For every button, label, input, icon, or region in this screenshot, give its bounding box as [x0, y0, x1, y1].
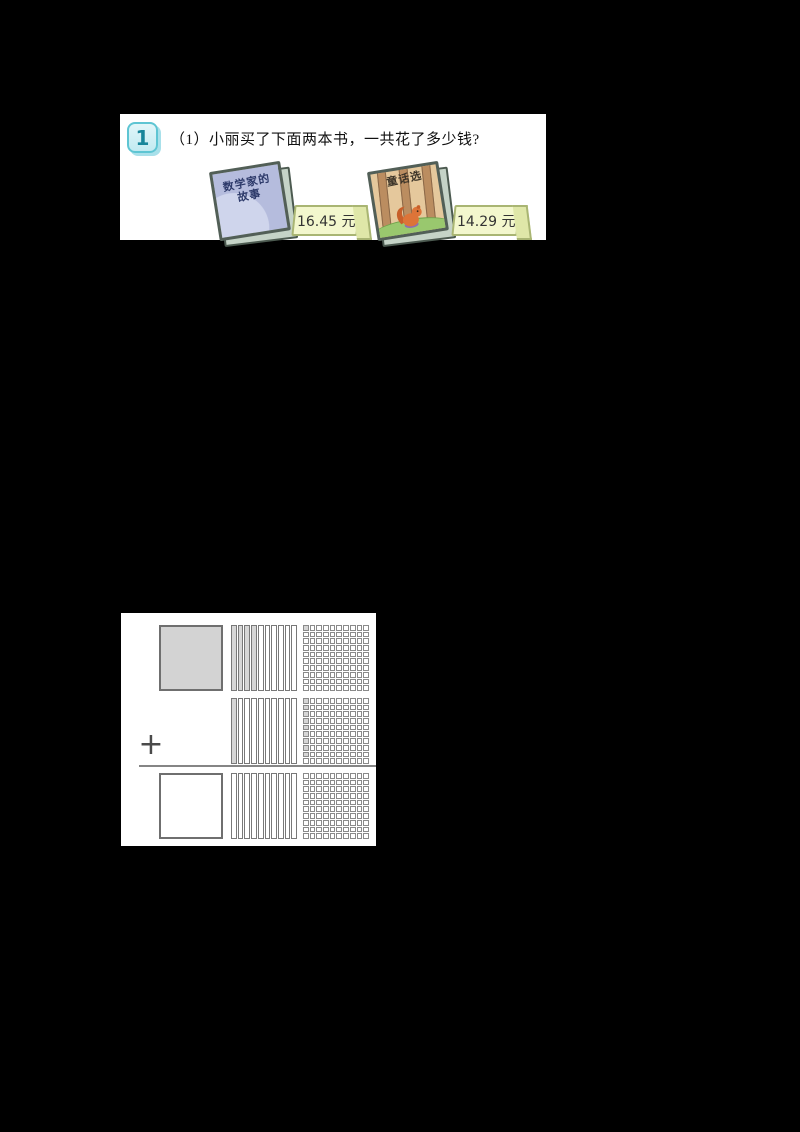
hundredth-cell	[330, 705, 336, 711]
hundredth-cell	[323, 625, 329, 631]
hundredth-cell	[343, 665, 349, 671]
hundredth-cell	[310, 800, 316, 806]
hundredth-cell	[323, 658, 329, 664]
hundredth-cell	[303, 786, 309, 792]
hundredth-cell	[343, 827, 349, 833]
hundredth-cell	[330, 698, 336, 704]
hundredth-cell	[336, 711, 342, 717]
hundredth-cell	[316, 806, 322, 812]
hundredth-cell	[303, 745, 309, 751]
price-label: 14.29 元	[457, 211, 516, 231]
model-panel: +	[121, 613, 376, 846]
hundredth-cell	[336, 800, 342, 806]
tenth-strip	[271, 698, 277, 764]
hundredth-cell	[343, 833, 349, 839]
tenth-strip	[251, 698, 257, 764]
hundredth-cell	[316, 665, 322, 671]
book-fairy-tales: 童话选	[371, 165, 450, 242]
hundredth-cell	[350, 780, 356, 786]
hundredth-cell	[363, 752, 369, 758]
hundredth-cell	[316, 773, 322, 779]
hundredth-cell	[310, 679, 316, 685]
hundredth-cell	[330, 652, 336, 658]
tenth-strip	[244, 625, 250, 691]
hundredth-cell	[323, 638, 329, 644]
hundredth-cell	[350, 679, 356, 685]
hundredth-cell	[323, 752, 329, 758]
hundredth-cell	[350, 752, 356, 758]
hundredth-cell	[343, 820, 349, 826]
hundredth-cell	[336, 625, 342, 631]
hundredth-cell	[310, 711, 316, 717]
hundredth-cell	[357, 745, 363, 751]
hundredths-grid	[303, 625, 369, 691]
hundredth-cell	[350, 758, 356, 764]
hundredth-cell	[310, 645, 316, 651]
hundredth-cell	[350, 645, 356, 651]
hundredth-cell	[357, 758, 363, 764]
hundredth-cell	[350, 813, 356, 819]
hundredth-cell	[357, 813, 363, 819]
hundredth-cell	[310, 652, 316, 658]
hundredth-cell	[316, 738, 322, 744]
hundredth-cell	[330, 745, 336, 751]
hundredth-cell	[357, 652, 363, 658]
hundredth-cell	[363, 679, 369, 685]
book-title: 数学家的 故事	[213, 171, 283, 210]
hundredth-cell	[330, 632, 336, 638]
hundredth-cell	[350, 625, 356, 631]
tenth-strip	[291, 773, 297, 839]
hundredth-cell	[336, 679, 342, 685]
hundredth-cell	[350, 786, 356, 792]
price-tag-2: 14.29 元	[451, 205, 520, 236]
hundredth-cell	[336, 731, 342, 737]
hundredth-cell	[330, 718, 336, 724]
hundredth-cell	[350, 833, 356, 839]
hundredth-cell	[336, 738, 342, 744]
hundredth-cell	[303, 718, 309, 724]
hundredth-cell	[343, 780, 349, 786]
sum-line	[139, 765, 376, 767]
hundredth-cell	[316, 833, 322, 839]
hundredth-cell	[336, 813, 342, 819]
hundredth-cell	[336, 786, 342, 792]
hundredth-cell	[343, 786, 349, 792]
hundredth-cell	[350, 638, 356, 644]
hundredth-cell	[316, 652, 322, 658]
hundredth-cell	[303, 758, 309, 764]
hundredth-cell	[343, 679, 349, 685]
hundredth-cell	[357, 786, 363, 792]
hundredth-cell	[357, 679, 363, 685]
hundredth-cell	[363, 820, 369, 826]
hundredth-cell	[350, 725, 356, 731]
hundredth-cell	[303, 685, 309, 691]
hundredth-cell	[310, 758, 316, 764]
tenth-strip	[265, 773, 271, 839]
book-math-stories: 数学家的 故事	[213, 165, 292, 242]
tenth-strip	[278, 698, 284, 764]
hundredth-cell	[336, 827, 342, 833]
hundredth-cell	[357, 752, 363, 758]
hundredth-cell	[330, 758, 336, 764]
tenth-strip	[258, 773, 264, 839]
hundredth-cell	[310, 632, 316, 638]
hundredth-cell	[357, 665, 363, 671]
hundredth-cell	[343, 806, 349, 812]
hundredth-cell	[363, 833, 369, 839]
hundredth-cell	[357, 731, 363, 737]
hundredth-cell	[330, 786, 336, 792]
hundredth-cell	[357, 773, 363, 779]
hundredth-cell	[343, 705, 349, 711]
hundredth-cell	[357, 698, 363, 704]
price-label: 16.45 元	[297, 211, 356, 231]
hundredth-cell	[330, 752, 336, 758]
hundredth-cell	[303, 820, 309, 826]
problem-panel: 1 （1）小丽买了下面两本书，一共花了多少钱? 数学家的 故事 16.45 元	[120, 114, 546, 240]
hundredth-cell	[330, 820, 336, 826]
hundredth-cell	[336, 718, 342, 724]
hundredth-cell	[303, 645, 309, 651]
book-math-stories-cover: 数学家的 故事	[209, 161, 291, 241]
tenth-strip	[291, 625, 297, 691]
hundredth-cell	[343, 793, 349, 799]
hundredth-cell	[363, 731, 369, 737]
hundredth-cell	[323, 745, 329, 751]
hundredth-cell	[310, 718, 316, 724]
hundredth-cell	[303, 738, 309, 744]
hundredth-cell	[323, 820, 329, 826]
tenth-strip	[244, 773, 250, 839]
hundredth-cell	[310, 752, 316, 758]
hundredth-cell	[343, 711, 349, 717]
hundredth-cell	[310, 786, 316, 792]
hundredth-cell	[357, 705, 363, 711]
hundredth-cell	[363, 786, 369, 792]
hundredth-cell	[343, 625, 349, 631]
hundredth-cell	[336, 752, 342, 758]
addend-row-1	[121, 625, 376, 691]
sum-row	[121, 773, 376, 839]
hundredth-cell	[343, 773, 349, 779]
hundredth-cell	[330, 731, 336, 737]
hundredth-cell	[357, 833, 363, 839]
hundredth-cell	[363, 698, 369, 704]
hundredth-cell	[357, 793, 363, 799]
tenth-strip	[278, 625, 284, 691]
hundredth-cell	[350, 705, 356, 711]
hundredth-cell	[323, 679, 329, 685]
hundredths-grid	[303, 698, 369, 764]
hundredth-cell	[350, 711, 356, 717]
hundredth-cell	[350, 793, 356, 799]
problem-question: （1）小丽买了下面两本书，一共花了多少钱?	[170, 131, 535, 149]
hundredth-cell	[363, 665, 369, 671]
hundredth-cell	[330, 827, 336, 833]
hundredth-cell	[350, 685, 356, 691]
tenth-strip	[231, 698, 237, 764]
hundredth-cell	[336, 773, 342, 779]
hundredth-cell	[363, 718, 369, 724]
tenth-strip	[238, 698, 244, 764]
hundredth-cell	[303, 827, 309, 833]
hundredth-cell	[316, 725, 322, 731]
worksheet-canvas: { "colors": { "canvas_bg": "#000000", "p…	[0, 0, 800, 1132]
hundredth-cell	[336, 632, 342, 638]
hundredth-cell	[330, 725, 336, 731]
hundredth-cell	[323, 672, 329, 678]
hundredth-cell	[316, 685, 322, 691]
hundredth-cell	[303, 773, 309, 779]
hundredth-cell	[310, 806, 316, 812]
tenth-strip	[258, 625, 264, 691]
hundredth-cell	[343, 752, 349, 758]
hundredth-cell	[343, 645, 349, 651]
hundredth-cell	[330, 780, 336, 786]
hundredth-cell	[316, 793, 322, 799]
hundredth-cell	[357, 638, 363, 644]
hundredth-cell	[350, 827, 356, 833]
hundredth-cell	[343, 745, 349, 751]
hundredth-cell	[330, 679, 336, 685]
hundredth-cell	[336, 833, 342, 839]
hundredth-cell	[363, 685, 369, 691]
hundredth-cell	[303, 625, 309, 631]
hundredth-cell	[363, 758, 369, 764]
tenth-strip	[265, 625, 271, 691]
hundredth-cell	[323, 665, 329, 671]
hundredth-cell	[350, 820, 356, 826]
hundredth-cell	[310, 731, 316, 737]
hundredth-cell	[310, 793, 316, 799]
price-tag-1: 16.45 元	[291, 205, 360, 236]
hundredth-cell	[336, 780, 342, 786]
hundredth-cell	[303, 793, 309, 799]
hundredth-cell	[316, 718, 322, 724]
hundredth-cell	[343, 698, 349, 704]
hundredth-cell	[316, 638, 322, 644]
hundredth-cell	[363, 745, 369, 751]
hundredth-cell	[336, 645, 342, 651]
hundredth-cell	[323, 725, 329, 731]
tenth-strip	[291, 698, 297, 764]
hundredth-cell	[310, 665, 316, 671]
hundredth-cell	[310, 672, 316, 678]
hundredth-cell	[323, 645, 329, 651]
hundredth-cell	[363, 632, 369, 638]
hundredth-cell	[316, 632, 322, 638]
hundredth-cell	[343, 758, 349, 764]
hundredth-cell	[357, 672, 363, 678]
tenth-strip	[265, 698, 271, 764]
tenth-strip	[258, 698, 264, 764]
tenth-strip	[285, 625, 291, 691]
hundredth-cell	[357, 658, 363, 664]
hundredth-cell	[363, 800, 369, 806]
tenth-strip	[278, 773, 284, 839]
hundredth-cell	[316, 731, 322, 737]
hundredth-cell	[316, 786, 322, 792]
hundredth-cell	[343, 731, 349, 737]
hundredth-cell	[343, 638, 349, 644]
hundredth-cell	[323, 705, 329, 711]
hundredth-cell	[343, 632, 349, 638]
hundredth-cell	[350, 658, 356, 664]
hundredth-cell	[336, 806, 342, 812]
hundredth-cell	[316, 645, 322, 651]
hundredth-cell	[330, 665, 336, 671]
hundredth-cell	[323, 632, 329, 638]
tenths-square	[231, 625, 297, 691]
hundredth-cell	[350, 698, 356, 704]
hundredth-cell	[350, 773, 356, 779]
hundredth-cell	[316, 752, 322, 758]
hundredth-cell	[343, 725, 349, 731]
hundredth-cell	[310, 738, 316, 744]
hundredth-cell	[310, 638, 316, 644]
problem-number-badge: 1	[127, 122, 158, 153]
hundredth-cell	[303, 672, 309, 678]
hundredth-cell	[303, 731, 309, 737]
hundredth-cell	[330, 658, 336, 664]
tenth-strip	[271, 625, 277, 691]
hundredth-cell	[350, 806, 356, 812]
hundredth-cell	[310, 698, 316, 704]
hundredth-cell	[330, 638, 336, 644]
tenth-strip	[244, 698, 250, 764]
hundredth-cell	[323, 813, 329, 819]
whole-square	[159, 773, 223, 839]
hundredth-cell	[357, 800, 363, 806]
hundredth-cell	[316, 780, 322, 786]
hundredth-cell	[316, 820, 322, 826]
hundredth-cell	[323, 711, 329, 717]
hundredth-cell	[343, 672, 349, 678]
hundredth-cell	[350, 665, 356, 671]
hundredth-cell	[357, 711, 363, 717]
hundredth-cell	[350, 800, 356, 806]
tenth-strip	[251, 625, 257, 691]
hundredth-cell	[330, 773, 336, 779]
hundredth-cell	[323, 793, 329, 799]
hundredth-cell	[357, 827, 363, 833]
hundredth-cell	[330, 625, 336, 631]
hundredth-cell	[310, 725, 316, 731]
hundredth-cell	[316, 705, 322, 711]
hundredth-cell	[330, 711, 336, 717]
tenth-strip	[285, 698, 291, 764]
tenth-strip	[285, 773, 291, 839]
hundredth-cell	[323, 780, 329, 786]
hundredth-cell	[336, 658, 342, 664]
tenth-strip	[251, 773, 257, 839]
hundredth-cell	[303, 800, 309, 806]
book-fairy-tales-cover: 童话选	[367, 161, 449, 241]
hundredth-cell	[330, 672, 336, 678]
hundredth-cell	[310, 685, 316, 691]
hundredth-cell	[323, 806, 329, 812]
hundredth-cell	[343, 813, 349, 819]
hundredth-cell	[323, 731, 329, 737]
hundredth-cell	[363, 658, 369, 664]
hundredth-cell	[303, 752, 309, 758]
hundredth-cell	[323, 827, 329, 833]
hundredth-cell	[316, 672, 322, 678]
hundredth-cell	[330, 800, 336, 806]
hundredth-cell	[316, 698, 322, 704]
hundredth-cell	[316, 679, 322, 685]
hundredth-cell	[310, 827, 316, 833]
tenth-strip	[231, 625, 237, 691]
hundredth-cell	[316, 758, 322, 764]
tenth-strip	[271, 773, 277, 839]
hundredth-cell	[316, 625, 322, 631]
hundredth-cell	[363, 827, 369, 833]
hundredth-cell	[330, 793, 336, 799]
hundredths-grid	[303, 773, 369, 839]
hundredth-cell	[363, 773, 369, 779]
hundredth-cell	[310, 780, 316, 786]
hundredth-cell	[330, 833, 336, 839]
hundredth-cell	[336, 745, 342, 751]
hundredth-cell	[303, 658, 309, 664]
hundredth-cell	[303, 780, 309, 786]
hundredth-cell	[357, 725, 363, 731]
hundredth-cell	[336, 652, 342, 658]
hundredth-cell	[363, 711, 369, 717]
hundredth-cell	[343, 738, 349, 744]
hundredth-cell	[323, 652, 329, 658]
hundredth-cell	[363, 705, 369, 711]
hundredth-cell	[357, 685, 363, 691]
hundredth-cell	[336, 705, 342, 711]
hundredth-cell	[323, 800, 329, 806]
squirrel-illustration	[391, 197, 429, 232]
hundredth-cell	[316, 800, 322, 806]
hundredth-cell	[336, 685, 342, 691]
hundredth-cell	[363, 652, 369, 658]
hundredth-cell	[363, 813, 369, 819]
hundredth-cell	[310, 833, 316, 839]
hundredth-cell	[363, 625, 369, 631]
hundredth-cell	[336, 638, 342, 644]
hundredth-cell	[343, 652, 349, 658]
hundredth-cell	[350, 738, 356, 744]
hundredth-cell	[310, 773, 316, 779]
hundredth-cell	[303, 652, 309, 658]
hundredth-cell	[363, 780, 369, 786]
hundredth-cell	[303, 833, 309, 839]
hundredth-cell	[363, 793, 369, 799]
hundredth-cell	[336, 665, 342, 671]
whole-square	[159, 625, 223, 691]
hundredth-cell	[350, 652, 356, 658]
hundredth-cell	[357, 780, 363, 786]
tenth-strip	[231, 773, 237, 839]
hundredth-cell	[357, 632, 363, 638]
hundredth-cell	[323, 833, 329, 839]
hundredth-cell	[303, 806, 309, 812]
hundredth-cell	[357, 625, 363, 631]
hundredth-cell	[303, 632, 309, 638]
hundredth-cell	[343, 658, 349, 664]
hundredth-cell	[357, 820, 363, 826]
hundredth-cell	[363, 645, 369, 651]
hundredth-cell	[323, 758, 329, 764]
hundredth-cell	[303, 813, 309, 819]
